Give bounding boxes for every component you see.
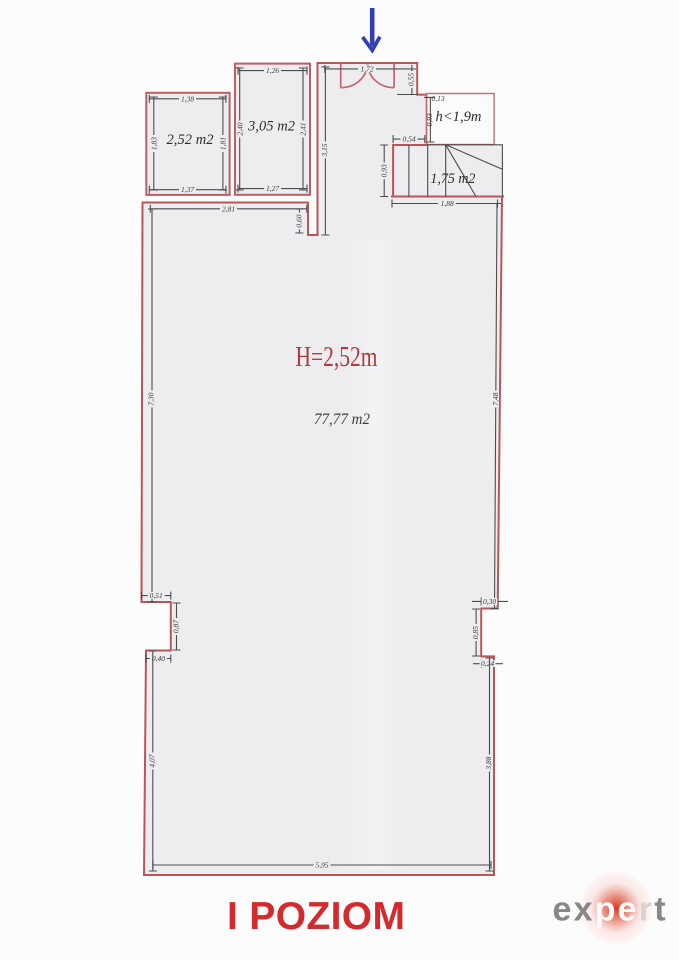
svg-text:1,88: 1,88: [441, 199, 454, 208]
svg-text:1,72: 1,72: [360, 64, 373, 73]
svg-text:1,27: 1,27: [266, 184, 279, 193]
svg-text:0,55: 0,55: [407, 73, 416, 86]
svg-text:0,54: 0,54: [402, 135, 415, 144]
svg-text:0,87: 0,87: [172, 620, 181, 633]
svg-text:1,38: 1,38: [181, 94, 194, 103]
svg-text:77,77 m2: 77,77 m2: [314, 411, 370, 428]
svg-text:1,75 m2: 1,75 m2: [430, 171, 475, 187]
svg-text:h<1,9m: h<1,9m: [436, 109, 482, 125]
svg-text:2,52 m2: 2,52 m2: [167, 132, 214, 148]
svg-text:4,07: 4,07: [147, 754, 156, 767]
svg-text:H=2,52m: H=2,52m: [296, 342, 378, 373]
svg-text:0,60: 0,60: [295, 214, 304, 227]
svg-text:0,13: 0,13: [431, 94, 444, 103]
svg-text:0,51: 0,51: [150, 591, 163, 600]
svg-text:0,93: 0,93: [425, 113, 434, 126]
svg-text:2,81: 2,81: [222, 204, 235, 213]
svg-text:0,85: 0,85: [471, 626, 480, 639]
svg-text:0,40: 0,40: [152, 654, 165, 663]
svg-text:7,30: 7,30: [147, 392, 156, 405]
svg-text:2,40: 2,40: [235, 122, 244, 135]
svg-text:1,83: 1,83: [149, 137, 158, 150]
svg-text:2,41: 2,41: [299, 122, 308, 135]
svg-text:1,26: 1,26: [266, 66, 279, 75]
svg-text:3,05 m2: 3,05 m2: [247, 119, 295, 135]
svg-text:I POZIOM: I POZIOM: [227, 895, 405, 938]
svg-text:0,30: 0,30: [483, 597, 496, 606]
svg-text:0,93: 0,93: [379, 164, 388, 177]
svg-text:expert: expert: [553, 891, 668, 929]
svg-text:1,81: 1,81: [219, 137, 228, 150]
svg-text:3,15: 3,15: [320, 143, 329, 157]
svg-text:3,88: 3,88: [484, 756, 493, 770]
svg-text:5,95: 5,95: [315, 861, 328, 870]
svg-text:7,48: 7,48: [491, 392, 500, 405]
svg-text:0,24: 0,24: [481, 659, 494, 668]
svg-text:1,37: 1,37: [181, 185, 194, 194]
